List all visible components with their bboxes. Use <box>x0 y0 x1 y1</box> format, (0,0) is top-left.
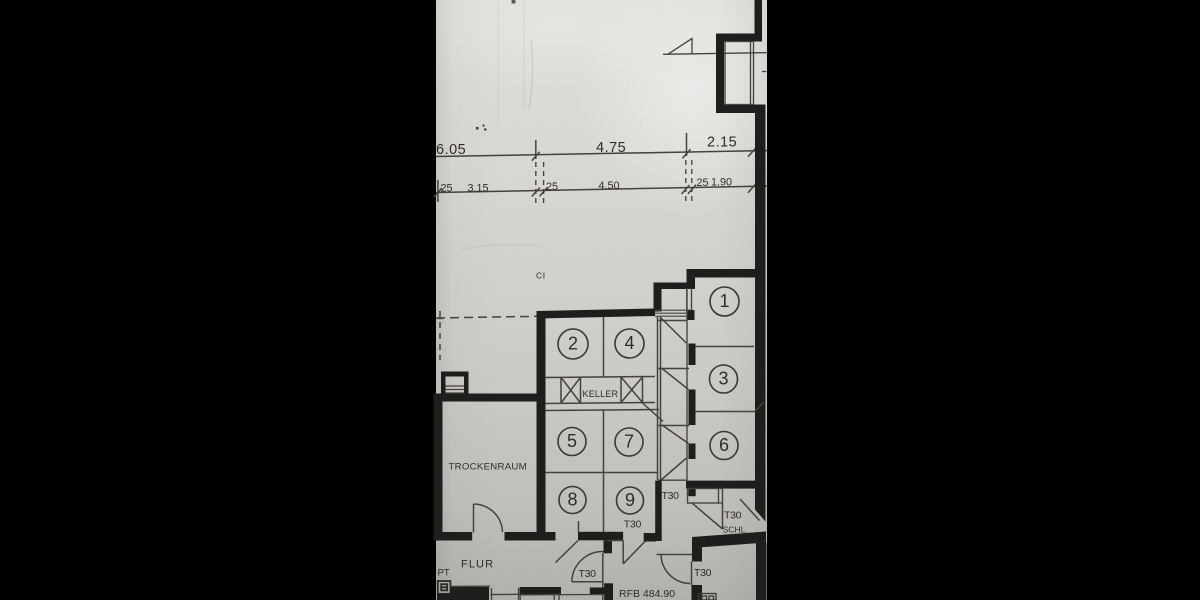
svg-text:3: 3 <box>718 369 728 389</box>
svg-text:7: 7 <box>624 432 634 452</box>
svg-text:CI: CI <box>536 271 546 281</box>
svg-text:RFB 484.90: RFB 484.90 <box>619 588 675 600</box>
svg-text:25: 25 <box>441 183 453 195</box>
svg-text:3.15: 3.15 <box>468 183 489 195</box>
svg-text:5: 5 <box>567 431 577 451</box>
svg-text:4.50: 4.50 <box>599 180 620 192</box>
svg-text:T30: T30 <box>662 490 680 502</box>
svg-text:4.75: 4.75 <box>596 140 626 156</box>
svg-text:PT: PT <box>438 568 450 579</box>
svg-text:T30: T30 <box>624 519 642 531</box>
svg-text:TROCKENRAUM: TROCKENRAUM <box>449 462 527 473</box>
svg-text:1: 1 <box>719 291 729 311</box>
svg-text:25: 25 <box>546 181 558 193</box>
svg-text:8: 8 <box>567 490 577 510</box>
svg-text:6: 6 <box>719 435 729 455</box>
svg-text:2.15: 2.15 <box>707 135 737 151</box>
svg-text:1.90: 1.90 <box>711 177 732 189</box>
svg-text:4: 4 <box>624 333 634 353</box>
svg-text:FLUR: FLUR <box>461 559 494 571</box>
svg-text:T30: T30 <box>694 567 712 579</box>
svg-text:T30: T30 <box>579 568 597 580</box>
svg-text:KELLER: KELLER <box>583 389 619 399</box>
svg-text:9: 9 <box>625 490 635 510</box>
svg-text:T30: T30 <box>724 510 742 522</box>
svg-text:2: 2 <box>568 334 578 354</box>
svg-text:25: 25 <box>697 177 709 189</box>
svg-text:SCHL.: SCHL. <box>723 525 748 535</box>
svg-text:6.05: 6.05 <box>436 142 466 158</box>
